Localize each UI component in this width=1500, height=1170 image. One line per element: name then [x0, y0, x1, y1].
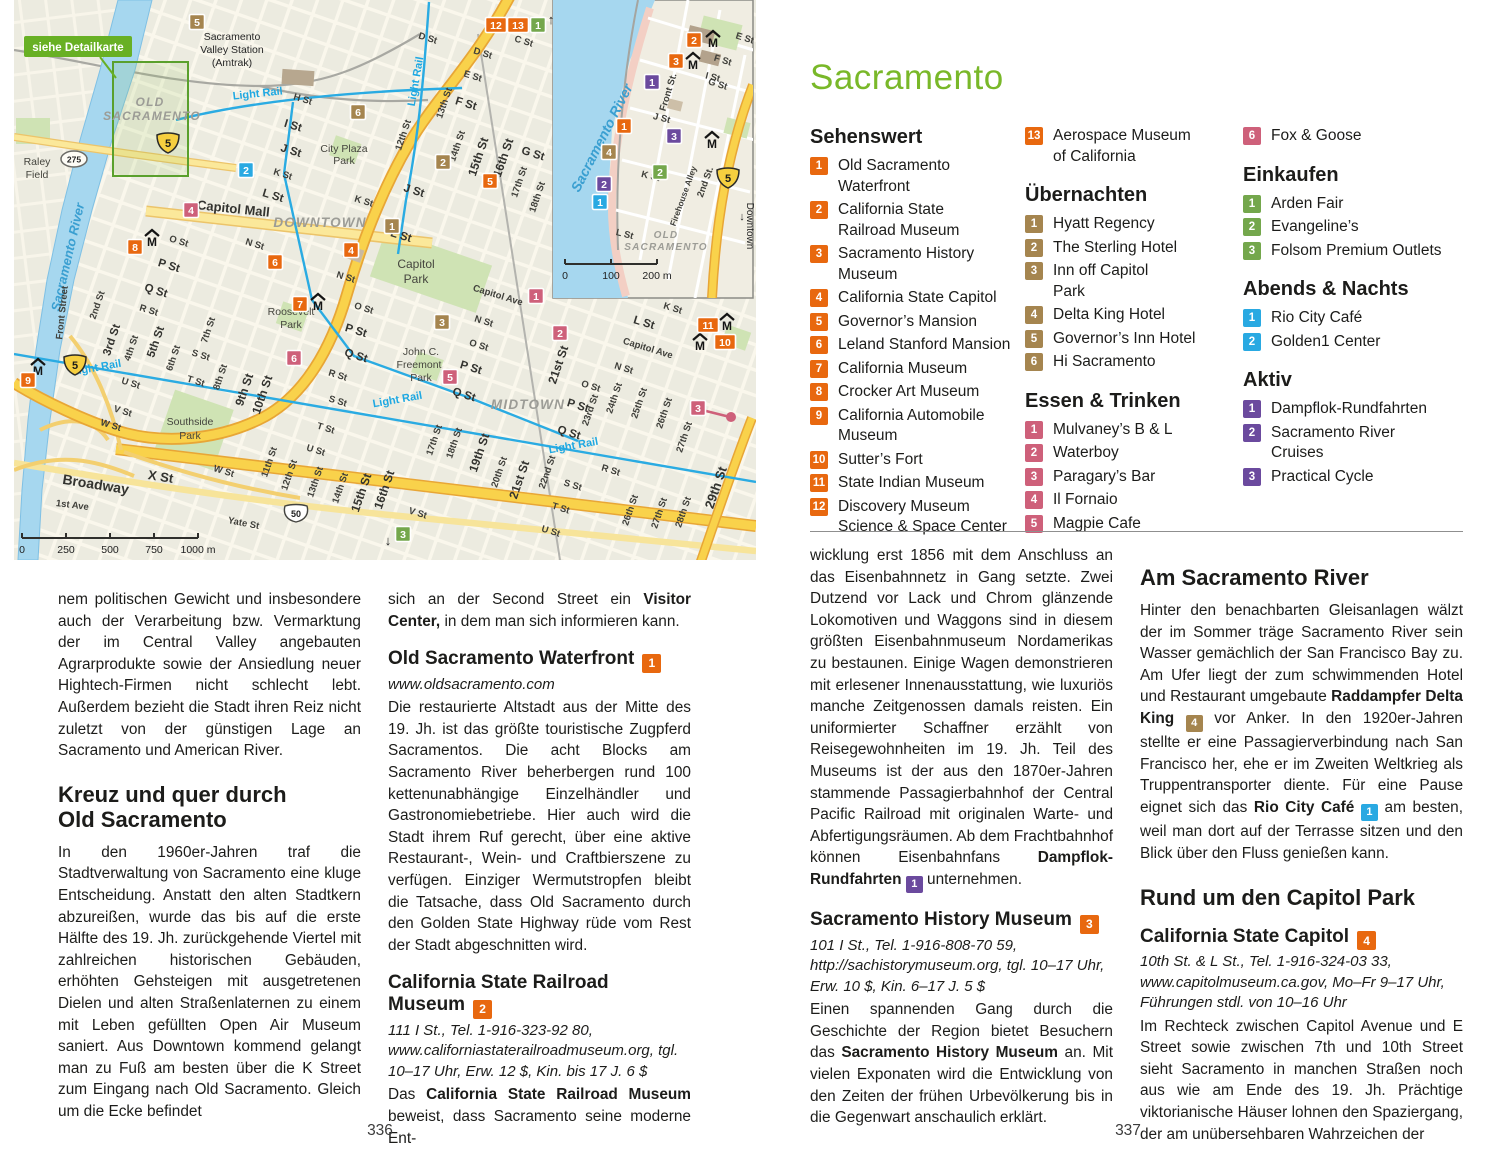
- svg-text:1: 1: [649, 77, 655, 89]
- legend-item: 1Rio City Café: [1243, 308, 1465, 329]
- legend-item-label: Governor’s Inn Hotel: [1053, 329, 1195, 350]
- section-heading: Am Sacramento River: [1140, 565, 1463, 590]
- section-heading: Kreuz und quer durchOld Sacramento: [58, 782, 361, 832]
- legend-item-label: Inn off CapitolPark: [1053, 261, 1148, 302]
- text-run: unternehmen.: [923, 871, 1022, 888]
- legend-item-label: Hi Sacramento: [1053, 352, 1156, 373]
- legend-item: 1Dampflok-Rundfahrten: [1243, 399, 1465, 420]
- poi-number-badge: 1: [906, 876, 923, 893]
- text-run: Die restaurierte Altstadt aus der Mitte …: [388, 699, 691, 954]
- poi-number-badge: 5: [1025, 330, 1043, 348]
- svg-text:13: 13: [512, 20, 524, 32]
- legend-item: 11State Indian Museum: [810, 473, 1025, 494]
- text-run: beweist, dass Sacramento seine moderne E…: [388, 1108, 691, 1147]
- legend-item: 2Sacramento RiverCruises: [1243, 423, 1465, 464]
- poi-number-badge: 3: [1080, 915, 1099, 934]
- svg-text:6: 6: [291, 353, 297, 365]
- legend-item-label: Leland Stanford Mansion: [838, 335, 1010, 356]
- map-poi-marker: 6: [287, 351, 302, 366]
- state-route-oval: 275: [61, 151, 87, 167]
- map-label: Park: [404, 272, 430, 286]
- poi-number-badge: 1: [1243, 309, 1261, 327]
- map-label: Park: [179, 430, 201, 442]
- svg-text:1000 m: 1000 m: [180, 544, 215, 556]
- legend-item: 2California StateRailroad Museum: [810, 200, 1025, 241]
- svg-text:5: 5: [725, 173, 731, 185]
- svg-text:2: 2: [557, 328, 563, 340]
- poi-number-badge: 1: [810, 157, 828, 175]
- legend-block: Übernachten1Hyatt Regency2The Sterling H…: [1025, 170, 1243, 376]
- map-label: SACRAMENTO: [103, 109, 201, 123]
- legend-item-label: Rio City Café: [1271, 308, 1362, 329]
- map-label: Sacramento: [204, 31, 261, 43]
- map-label: OLD: [654, 230, 679, 241]
- poi-number-badge: 4: [1186, 715, 1203, 732]
- entry-heading: Old Sacramento Waterfront1: [388, 648, 691, 673]
- legend-item: 3Folsom Premium Outlets: [1243, 241, 1465, 262]
- map-label: Raley: [24, 156, 52, 168]
- legend-item-label: Paragary’s Bar: [1053, 467, 1155, 488]
- legend-item: 3Practical Cycle: [1243, 467, 1465, 488]
- map-poi-marker: 8: [128, 240, 143, 255]
- text-run: Das: [388, 1086, 426, 1103]
- svg-text:5: 5: [165, 138, 171, 150]
- poi-number-badge: 6: [1243, 127, 1261, 145]
- svg-text:50: 50: [291, 509, 301, 519]
- svg-text:500: 500: [101, 544, 119, 556]
- map-label: DOWNTOWN: [273, 215, 366, 230]
- svg-text:0: 0: [562, 270, 568, 282]
- entry-info-line: www.oldsacramento.com: [388, 675, 691, 696]
- right-page-column-2: Am Sacramento RiverHinter den benachbart…: [1140, 545, 1463, 1145]
- poi-number-badge: 4: [1025, 491, 1043, 509]
- svg-text:0: 0: [19, 544, 25, 556]
- left-page-column-2: sich an der Second Street ein Visitor Ce…: [388, 589, 691, 1149]
- city-map: siehe Detailkarte: [0, 0, 756, 562]
- legend-item: 1Arden Fair: [1243, 194, 1465, 215]
- text-run: Rio City Café: [1254, 799, 1354, 816]
- poi-number-badge: 6: [1025, 353, 1043, 371]
- map-poi-marker: 1: [385, 219, 400, 234]
- map-poi-marker: 3: [667, 129, 682, 144]
- poi-number-badge: 1: [1361, 804, 1378, 821]
- svg-text:5: 5: [447, 372, 453, 384]
- poi-number-badge: 1: [1025, 215, 1043, 233]
- legend-item: 4California State Capitol: [810, 288, 1025, 309]
- legend-item-label: Mulvaney’s B & L: [1053, 420, 1172, 441]
- map-poi-marker: 2: [687, 33, 702, 48]
- map-poi-marker: 4: [344, 243, 359, 258]
- map-poi-marker: 11: [698, 318, 719, 333]
- svg-text:3: 3: [439, 317, 445, 329]
- paragraph: In den 1960er-Jahren traf die Stadtverwa…: [58, 842, 361, 1123]
- poi-number-badge: 2: [810, 201, 828, 219]
- right-page-column-1: wicklung erst 1856 mit dem Anschluss an …: [810, 545, 1113, 1129]
- legend-item: 4Delta King Hotel: [1025, 305, 1243, 326]
- svg-text:12: 12: [490, 20, 502, 32]
- map-label: Park: [333, 155, 355, 167]
- legend-heading: Sehenswert: [810, 126, 1025, 149]
- left-page-column-1: nem politischen Gewicht und insbesondere…: [58, 589, 361, 1122]
- legend-item-label: Sacramento RiverCruises: [1271, 423, 1395, 464]
- map-poi-marker: 1: [529, 289, 544, 304]
- svg-text:3: 3: [673, 56, 679, 68]
- map-poi-marker: 6: [351, 105, 366, 120]
- legend-item-label: California StateRailroad Museum: [838, 200, 959, 241]
- svg-text:4: 4: [606, 147, 612, 159]
- page-title: Sacramento: [810, 58, 1004, 98]
- paragraph: Im Rechteck zwischen Capitol Avenue und …: [1140, 1016, 1463, 1146]
- svg-text:1: 1: [389, 221, 395, 233]
- svg-text:200 m: 200 m: [642, 270, 671, 282]
- poi-number-badge: 3: [1025, 262, 1043, 280]
- svg-text:3: 3: [400, 529, 406, 541]
- poi-number-badge: 2: [1025, 444, 1043, 462]
- map-poi-marker: 5: [483, 174, 498, 189]
- text-run: [1174, 710, 1186, 727]
- poi-number-badge: 1: [1243, 400, 1261, 418]
- svg-text:M: M: [708, 36, 718, 50]
- legend-item: 7California Museum: [810, 359, 1025, 380]
- legend-item-label: Arden Fair: [1271, 194, 1343, 215]
- svg-text:1: 1: [597, 197, 603, 209]
- entry-info-line: 101 I St., Tel. 1-916-808-70 59, http://…: [810, 936, 1113, 998]
- map-poi-marker: 1: [645, 75, 660, 90]
- map-poi-marker: 6: [268, 255, 283, 270]
- svg-text:7: 7: [297, 299, 303, 311]
- paragraph: Die restaurierte Altstadt aus der Mitte …: [388, 697, 691, 956]
- poi-number-badge: 1: [1025, 421, 1043, 439]
- svg-text:8: 8: [132, 242, 138, 254]
- map-poi-marker: 3: [669, 54, 684, 69]
- legend-item: 5Governor’s Inn Hotel: [1025, 329, 1243, 350]
- svg-text:1: 1: [535, 20, 541, 32]
- svg-text:275: 275: [67, 155, 81, 165]
- map-poi-marker: 1: [531, 18, 546, 33]
- map-poi-marker: 4: [184, 203, 199, 218]
- section-heading: Rund um den Capitol Park: [1140, 885, 1463, 910]
- legend-item: 1Hyatt Regency: [1025, 214, 1243, 235]
- map-poi-marker: 1: [593, 195, 608, 210]
- map-label: John C.: [403, 346, 439, 358]
- entry-info-line: 111 I St., Tel. 1-916-323-92 80, www.cal…: [388, 1021, 691, 1083]
- svg-text:10: 10: [719, 337, 731, 349]
- paragraph: Das California State Railroad Museum bew…: [388, 1084, 691, 1149]
- svg-text:2: 2: [601, 179, 607, 191]
- map-label: (Amtrak): [212, 57, 252, 69]
- legend-item-label: Old SacramentoWaterfront: [838, 156, 950, 197]
- legend-item-label: Delta King Hotel: [1053, 305, 1165, 326]
- legend-heading: Aktiv: [1243, 369, 1465, 392]
- text-run: California State Railroad Museum: [426, 1086, 691, 1103]
- poi-number-badge: 2: [1243, 424, 1261, 442]
- map-poi-marker: 3: [396, 527, 411, 542]
- map-poi-marker: 13: [508, 18, 529, 33]
- svg-text:5: 5: [72, 360, 78, 372]
- legend-heading: Übernachten: [1025, 184, 1243, 207]
- legend-item-label: Dampflok-Rundfahrten: [1271, 399, 1427, 420]
- legend-item-label: Waterboy: [1053, 443, 1119, 464]
- svg-text:2: 2: [691, 35, 697, 47]
- poi-number-badge: 11: [810, 474, 828, 492]
- svg-text:9: 9: [25, 375, 31, 387]
- svg-text:250: 250: [57, 544, 75, 556]
- poi-number-badge: 4: [1025, 306, 1043, 324]
- legend-item: 6Leland Stanford Mansion: [810, 335, 1025, 356]
- legend-item: 13Aerospace Museumof California: [1025, 126, 1243, 167]
- svg-text:5: 5: [487, 176, 493, 188]
- map-label: OLD: [136, 95, 165, 109]
- poi-number-badge: 2: [1243, 333, 1261, 351]
- map-label: Park: [280, 319, 302, 331]
- poi-number-badge: 3: [1243, 242, 1261, 260]
- map-poi-marker: 12: [486, 18, 507, 33]
- poi-number-badge: 1: [1243, 195, 1261, 213]
- entry-info-line: 10th St. & L St., Tel. 1-916-324-03 33, …: [1140, 952, 1463, 1014]
- map-poi-marker: 5: [443, 370, 458, 385]
- legend-column: 6Fox & GooseEinkaufen1Arden Fair2Evangel…: [1243, 126, 1465, 541]
- map-poi-marker: 7: [293, 297, 308, 312]
- map-poi-marker: 2: [239, 163, 254, 178]
- text-run: Sacramento History Museum: [841, 1044, 1058, 1061]
- map-poi-marker: 1: [617, 119, 632, 134]
- map-label: MIDTOWN: [491, 397, 565, 412]
- legend-item-label: California State Capitol: [838, 288, 997, 309]
- map-label: Southside: [167, 416, 214, 428]
- legend-item-label: Practical Cycle: [1271, 467, 1374, 488]
- inset-map: [553, 0, 756, 298]
- poi-number-badge: 5: [1025, 515, 1043, 533]
- map-poi-marker: 4: [602, 145, 617, 160]
- legend-block: Sehenswert1Old SacramentoWaterfront2Cali…: [810, 126, 1025, 541]
- text-run: in dem man sich informieren kann.: [440, 613, 680, 630]
- legend-item-label: Crocker Art Museum: [838, 382, 979, 403]
- svg-text:2: 2: [657, 167, 663, 179]
- legend-item: 2The Sterling Hotel: [1025, 238, 1243, 259]
- paragraph: Hinter den benachbarten Gleisanlagen wäl…: [1140, 600, 1463, 865]
- map-label: ↑: [548, 12, 555, 27]
- poi-number-badge: 1: [642, 654, 661, 673]
- poi-number-badge: 6: [810, 336, 828, 354]
- legend-item: 9California AutomobileMuseum: [810, 406, 1025, 447]
- svg-text:1: 1: [533, 291, 539, 303]
- svg-text:6: 6: [272, 257, 278, 269]
- poi-number-badge: 4: [1357, 931, 1376, 950]
- map-label: Downtown: [744, 203, 755, 250]
- legend-block: Abends & Nachts1Rio City Café2Golden1 Ce…: [1243, 264, 1465, 355]
- map-label: ↓: [739, 211, 745, 223]
- map-poi-marker: 2: [436, 155, 451, 170]
- map-poi-marker: 5: [190, 15, 205, 30]
- legend-item-label: Fox & Goose: [1271, 126, 1361, 147]
- legend-item: 3Paragary’s Bar: [1025, 467, 1243, 488]
- map-label: Freemont: [397, 359, 442, 371]
- legend-item-label: State Indian Museum: [838, 473, 984, 494]
- legend-block: Einkaufen1Arden Fair2Evangeline’s3Folsom…: [1243, 150, 1465, 265]
- legend-item-label: California Museum: [838, 359, 967, 380]
- legend-item-label: Il Fornaio: [1053, 490, 1118, 511]
- svg-text:100: 100: [602, 270, 620, 282]
- legend-item: 3Sacramento HistoryMuseum: [810, 244, 1025, 285]
- map-label: ↓: [385, 533, 392, 548]
- svg-text:2: 2: [440, 157, 446, 169]
- poi-number-badge: 3: [1243, 468, 1261, 486]
- legend-item: 6Fox & Goose: [1243, 126, 1465, 147]
- poi-number-badge: 12: [810, 498, 828, 516]
- map-poi-marker: 3: [435, 315, 450, 330]
- legend-item-label: Sutter’s Fort: [838, 450, 923, 471]
- map-poi-marker: 2: [653, 165, 668, 180]
- poi-number-badge: 13: [1025, 127, 1043, 145]
- svg-text:6: 6: [355, 107, 361, 119]
- svg-text:M: M: [722, 319, 732, 333]
- poi-number-badge: 9: [810, 407, 828, 425]
- svg-text:4: 4: [188, 205, 194, 217]
- svg-text:3: 3: [671, 131, 677, 143]
- legend-item: 10Sutter’s Fort: [810, 450, 1025, 471]
- poi-number-badge: 2: [1025, 239, 1043, 257]
- legend-columns: Sehenswert1Old SacramentoWaterfront2Cali…: [810, 126, 1465, 541]
- paragraph: nem politischen Gewicht und insbesondere…: [58, 589, 361, 762]
- legend-item: 5Governor’s Mansion: [810, 312, 1025, 333]
- svg-text:M: M: [695, 339, 705, 353]
- svg-text:4: 4: [348, 245, 354, 257]
- legend-column: Sehenswert1Old SacramentoWaterfront2Cali…: [810, 126, 1025, 541]
- poi-number-badge: 3: [1025, 468, 1043, 486]
- paragraph: wicklung erst 1856 mit dem Anschluss an …: [810, 545, 1113, 893]
- legend-heading: Einkaufen: [1243, 164, 1465, 187]
- legend-item: 3Inn off CapitolPark: [1025, 261, 1243, 302]
- entry-heading: California State Capitol4: [1140, 926, 1463, 951]
- poi-number-badge: 8: [810, 383, 828, 401]
- svg-text:M: M: [147, 235, 157, 249]
- text-run: nem politischen Gewicht und insbesondere…: [58, 591, 361, 759]
- svg-text:M: M: [313, 299, 323, 313]
- svg-text:750: 750: [145, 544, 163, 556]
- legend-block: Essen & Trinken1Mulvaney’s B & L2Waterbo…: [1025, 376, 1243, 538]
- legend-item-label: California AutomobileMuseum: [838, 406, 984, 447]
- map-label: Valley Station: [200, 44, 264, 56]
- legend-item-label: Folsom Premium Outlets: [1271, 241, 1442, 262]
- poi-number-badge: 4: [810, 289, 828, 307]
- legend-item: 2Waterboy: [1025, 443, 1243, 464]
- text-run: wicklung erst 1856 mit dem Anschluss an …: [810, 547, 1113, 866]
- detail-callout-label: siehe Detailkarte: [32, 42, 123, 54]
- legend-item: 2Golden1 Center: [1243, 332, 1465, 353]
- entry-heading: California State RailroadMuseum2: [388, 972, 691, 1019]
- svg-text:1: 1: [621, 121, 627, 133]
- page-number-left: 336: [360, 1122, 400, 1140]
- text-run: In den 1960er-Jahren traf die Stadtverwa…: [58, 844, 361, 1120]
- legend-block: Aktiv1Dampflok-Rundfahrten2Sacramento Ri…: [1243, 355, 1465, 490]
- poi-number-badge: 10: [810, 451, 828, 469]
- text-run: sich an der Second Street ein: [388, 591, 643, 608]
- legend-heading: Abends & Nachts: [1243, 278, 1465, 301]
- legend-item-label: Evangeline’s: [1271, 217, 1359, 238]
- legend-item-label: Governor’s Mansion: [838, 312, 977, 333]
- poi-number-badge: 2: [473, 1000, 492, 1019]
- divider-rule: [810, 531, 1463, 532]
- legend-item: 8Crocker Art Museum: [810, 382, 1025, 403]
- map-label: SACRAMENTO: [624, 242, 707, 253]
- legend-block: 13Aerospace Museumof California: [1025, 126, 1243, 170]
- legend-item-label: The Sterling Hotel: [1053, 238, 1177, 259]
- map-poi-marker: 9: [21, 373, 36, 388]
- text-run: Im Rechteck zwischen Capitol Avenue und …: [1140, 1018, 1463, 1143]
- legend-item: 2Evangeline’s: [1243, 217, 1465, 238]
- paragraph: sich an der Second Street ein Visitor Ce…: [388, 589, 691, 632]
- poi-number-badge: 2: [1243, 218, 1261, 236]
- map-poi-marker: 10: [715, 335, 736, 350]
- paragraph: Einen spannenden Gang durch die Geschich…: [810, 999, 1113, 1129]
- legend-item-label: Aerospace Museumof California: [1053, 126, 1191, 167]
- legend-column: 13Aerospace Museumof CaliforniaÜbernacht…: [1025, 126, 1243, 541]
- legend-item: 6Hi Sacramento: [1025, 352, 1243, 373]
- poi-number-badge: 3: [810, 245, 828, 263]
- page-number-right: 337: [1108, 1122, 1148, 1140]
- svg-text:3: 3: [695, 403, 701, 415]
- legend-item: 4Il Fornaio: [1025, 490, 1243, 511]
- svg-text:5: 5: [194, 17, 200, 29]
- entry-heading: Sacramento History Museum3: [810, 909, 1113, 934]
- map-label: Park: [410, 372, 432, 384]
- map-label: Capitol: [397, 257, 434, 271]
- text-run: [1354, 799, 1361, 816]
- map-label: City Plaza: [320, 143, 367, 155]
- legend-block: 6Fox & Goose: [1243, 126, 1465, 150]
- poi-number-badge: 7: [810, 360, 828, 378]
- map-poi-marker: 2: [597, 177, 612, 192]
- svg-text:2: 2: [243, 165, 249, 177]
- legend-item: 1Old SacramentoWaterfront: [810, 156, 1025, 197]
- svg-text:M: M: [688, 58, 698, 72]
- svg-text:M: M: [707, 137, 717, 151]
- map-label: Field: [26, 169, 49, 181]
- legend-heading: Essen & Trinken: [1025, 390, 1243, 413]
- svg-text:11: 11: [702, 320, 713, 332]
- legend-item-label: Golden1 Center: [1271, 332, 1380, 353]
- map-poi-marker: 2: [553, 326, 568, 341]
- legend-item-label: Sacramento HistoryMuseum: [838, 244, 974, 285]
- legend-item-label: Hyatt Regency: [1053, 214, 1155, 235]
- legend-item: 1Mulvaney’s B & L: [1025, 420, 1243, 441]
- poi-number-badge: 5: [810, 313, 828, 331]
